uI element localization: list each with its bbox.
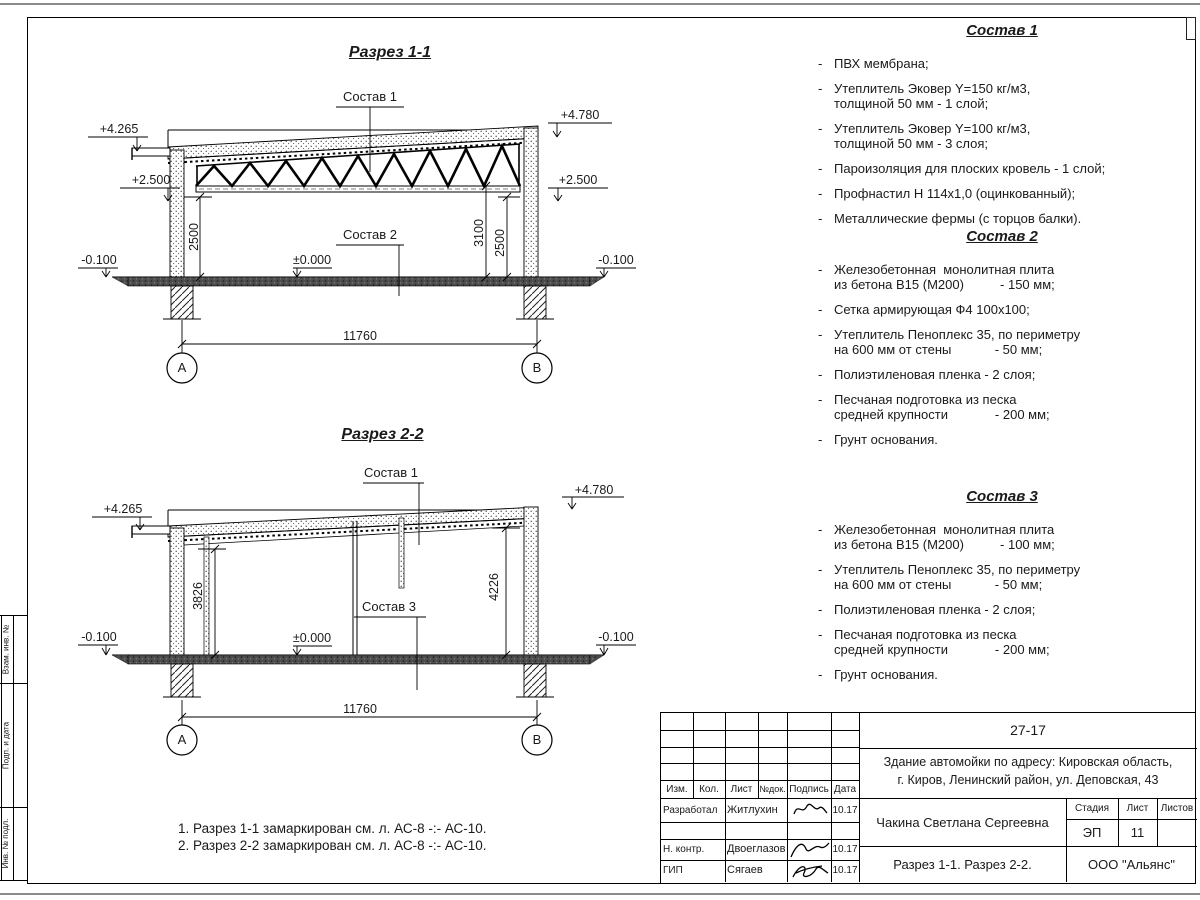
section1-dim-11760: 11760 xyxy=(320,329,400,343)
section2-elev-zero: ±0.000 xyxy=(290,631,334,645)
section2-elev-4265: +4.265 xyxy=(94,502,152,516)
tb-date: 10.17 xyxy=(831,860,859,881)
tb-header-data: Дата xyxy=(831,780,859,798)
list-item: -Песчаная подготовка из пескасредней кру… xyxy=(812,627,1192,657)
section1-elev-2500-left: +2.500 xyxy=(122,173,180,187)
list-dash: - xyxy=(812,211,834,226)
section1-callout-sostav2: Состав 2 xyxy=(334,228,406,242)
section2-elev-minus100-left: -0.100 xyxy=(78,630,120,644)
section2-title: Разрез 2-2 xyxy=(315,428,450,442)
tb-doc-code: 27-17 xyxy=(859,713,1197,748)
section1-elev-zero: ±0.000 xyxy=(290,253,334,267)
list-item: -ПВХ мембрана; xyxy=(812,56,1192,71)
tb-stage-value: ЭП xyxy=(1066,819,1118,846)
tb-date: 10.17 xyxy=(831,798,859,822)
tb-header-list: Лист xyxy=(725,780,758,798)
list-dash: - xyxy=(812,262,834,292)
section1-callout-sostav1: Состав 1 xyxy=(334,90,406,104)
section1-elev-4265: +4.265 xyxy=(90,122,148,136)
signature-gip xyxy=(788,861,830,883)
section1-dim-2500-left: 2500 xyxy=(187,217,201,257)
section1-dim-3100: 3100 xyxy=(472,213,486,253)
tb-header-kol: Кол. xyxy=(693,780,725,798)
section1-axis-b: В xyxy=(529,360,545,376)
list-dash: - xyxy=(812,81,834,111)
list-dash: - xyxy=(812,367,834,382)
tb-header-podpis: Подпись xyxy=(787,780,831,798)
list-dash: - xyxy=(812,161,834,176)
list-item: -Утеплитель Пеноплекс 35, по периметруна… xyxy=(812,562,1192,592)
tb-engineer: Чакина Светлана Сергеевна xyxy=(859,798,1066,846)
composition-1-title: Состав 1 xyxy=(812,22,1192,39)
list-item: -Утеплитель Пеноплекс 35, по периметруна… xyxy=(812,327,1192,357)
section2-dim-4226: 4226 xyxy=(487,567,501,607)
list-item: -Песчаная подготовка из пескасредней кру… xyxy=(812,392,1192,422)
section1-dim-2500-right: 2500 xyxy=(493,223,507,263)
tb-sheet-label: Лист xyxy=(1118,798,1157,819)
list-dash: - xyxy=(812,327,834,357)
tb-company: ООО "Альянс" xyxy=(1066,846,1197,882)
composition-2-title: Состав 2 xyxy=(812,228,1192,245)
list-item: -Полиэтиленовая пленка - 2 слоя; xyxy=(812,367,1192,382)
section1-axis-a: А xyxy=(174,360,190,376)
section2-axis-a: А xyxy=(174,732,190,748)
list-dash: - xyxy=(812,602,834,617)
list-dash: - xyxy=(812,186,834,201)
list-dash: - xyxy=(812,121,834,151)
tb-date: 10.17 xyxy=(831,839,859,860)
section2-elev-minus100-right: -0.100 xyxy=(595,630,637,644)
list-item: -Грунт основания. xyxy=(812,432,1192,447)
section2-callout-sostav1: Состав 1 xyxy=(358,466,424,480)
tb-sheets-value xyxy=(1157,819,1197,846)
list-dash: - xyxy=(812,392,834,422)
tb-role: ГИП xyxy=(663,860,725,881)
list-item: -Пароизоляция для плоских кровель - 1 сл… xyxy=(812,161,1192,176)
list-dash: - xyxy=(812,627,834,657)
list-dash: - xyxy=(812,522,834,552)
list-dash: - xyxy=(812,432,834,447)
tb-sheet-title: Разрез 1-1. Разрез 2-2. xyxy=(859,846,1066,882)
tb-name: Житлухин xyxy=(727,798,787,822)
composition-3: Состав 3 -Железобетонная монолитная плит… xyxy=(812,488,1192,692)
tb-sheets-label: Листов xyxy=(1157,798,1197,819)
composition-1: Состав 1 -ПВХ мембрана; -Утеплитель Эков… xyxy=(812,22,1192,236)
list-item: -Утеплитель Эковер Y=100 кг/м3,толщиной … xyxy=(812,121,1192,151)
section2-dim-11760: 11760 xyxy=(320,702,400,716)
notes: 1. Разрез 1-1 замаркирован см. л. АС-8 -… xyxy=(178,820,487,854)
signature-nkontr xyxy=(788,839,830,861)
composition-3-title: Состав 3 xyxy=(812,488,1192,505)
list-item: -Полиэтиленовая пленка - 2 слоя; xyxy=(812,602,1192,617)
tb-role: Н. контр. xyxy=(663,839,725,860)
list-item: -Утеплитель Эковер Y=150 кг/м3,толщиной … xyxy=(812,81,1192,111)
list-item: -Грунт основания. xyxy=(812,667,1192,682)
section2-elev-4780: +4.780 xyxy=(564,483,624,497)
tb-name: Сягаев xyxy=(727,860,787,881)
list-dash: - xyxy=(812,302,834,317)
section2-axis-b: В xyxy=(529,732,545,748)
tb-name: Двоеглазов xyxy=(727,839,787,860)
composition-2: Состав 2 -Железобетонная монолитная плит… xyxy=(812,228,1192,457)
list-dash: - xyxy=(812,562,834,592)
section1-elev-2500-right: +2.500 xyxy=(549,173,607,187)
tb-stage-label: Стадия xyxy=(1066,798,1118,819)
list-item: -Профнастил Н 114х1,0 (оцинкованный); xyxy=(812,186,1192,201)
list-dash: - xyxy=(812,56,834,71)
tb-header-ndok: №док. xyxy=(758,780,787,798)
tb-role: Разработал xyxy=(663,798,725,822)
section1-title: Разрез 1-1 xyxy=(320,46,460,60)
tb-project-line1: Здание автомойки по адресу: Кировская об… xyxy=(859,753,1197,771)
title-block: Изм. Кол. Лист №док. Подпись Дата Разраб… xyxy=(660,712,1196,884)
list-dash: - xyxy=(812,667,834,682)
note-line: 2. Разрез 2-2 замаркирован см. л. АС-8 -… xyxy=(178,837,487,854)
note-line: 1. Разрез 1-1 замаркирован см. л. АС-8 -… xyxy=(178,820,487,837)
section2-dim-3826: 3826 xyxy=(191,576,205,616)
section1-elev-4780: +4.780 xyxy=(550,108,610,122)
section1-elev-minus100-right: -0.100 xyxy=(595,253,637,267)
signature-razrabotal xyxy=(788,799,830,821)
list-item: -Сетка армирующая Ф4 100х100; xyxy=(812,302,1192,317)
list-item: -Железобетонная монолитная плитаиз бетон… xyxy=(812,522,1192,552)
list-item: -Железобетонная монолитная плитаиз бетон… xyxy=(812,262,1192,292)
tb-project-line2: г. Киров, Ленинский район, ул. Деповская… xyxy=(859,771,1197,789)
section2-callout-sostav3: Состав 3 xyxy=(352,600,426,614)
drawing-sheet: { "dash": "-", "section1": { "title": "Р… xyxy=(0,0,1200,900)
section1-elev-minus100-left: -0.100 xyxy=(78,253,120,267)
list-item: -Металлические фермы (с торцов балки). xyxy=(812,211,1192,226)
tb-sheet-value: 11 xyxy=(1118,819,1157,846)
tb-header-izm: Изм. xyxy=(661,780,693,798)
